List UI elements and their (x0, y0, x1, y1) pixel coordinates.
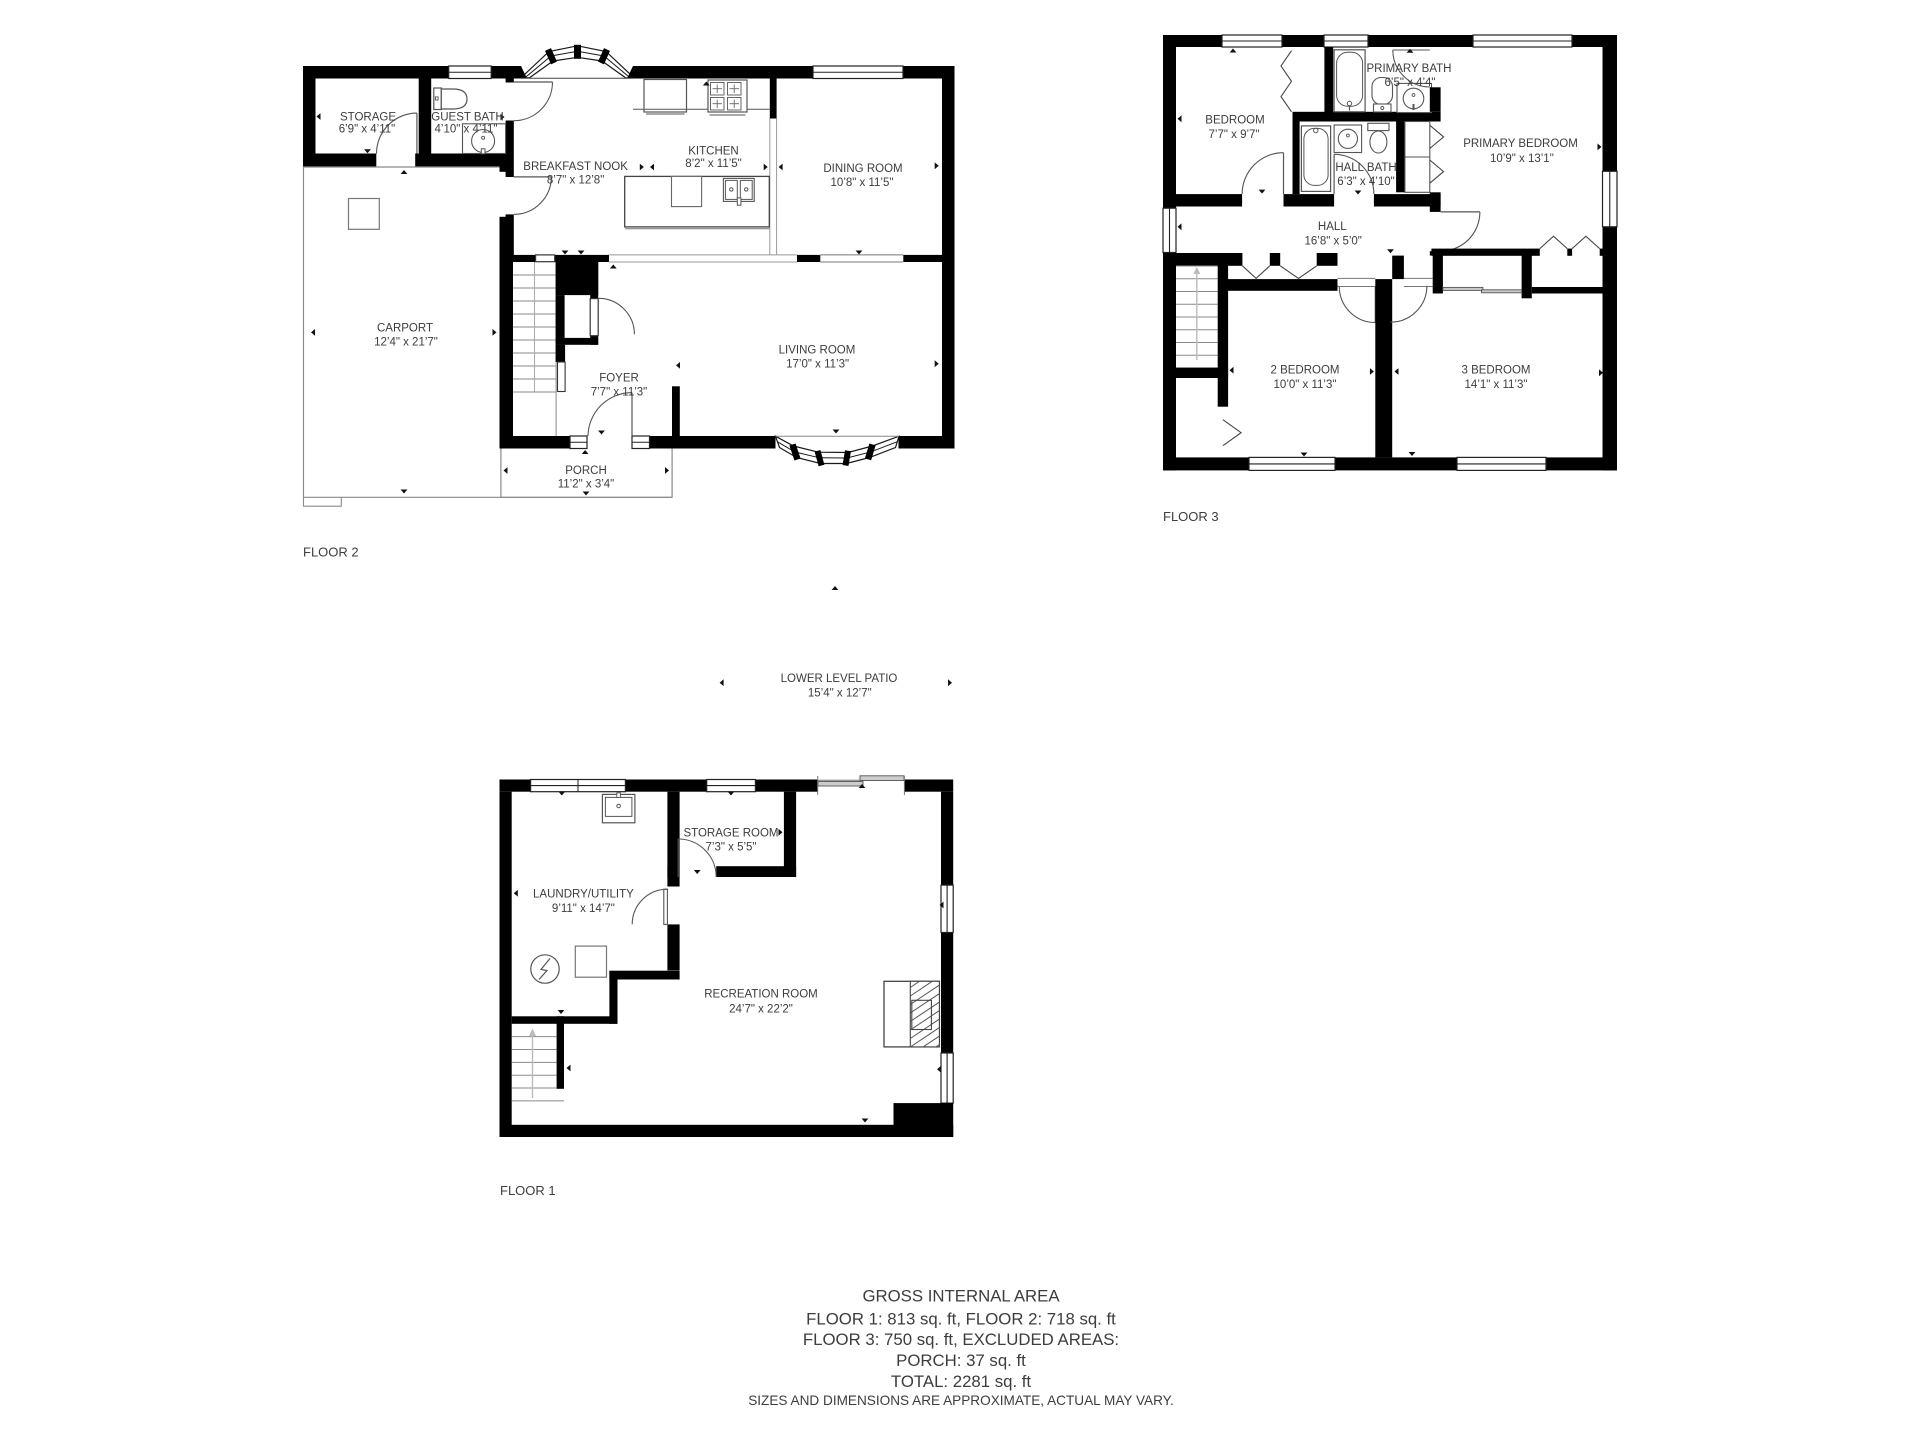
svg-text:6’9" x 4’11": 6’9" x 4’11" (339, 124, 396, 136)
svg-text:SIZES AND DIMENSIONS ARE APPRO: SIZES AND DIMENSIONS ARE APPROXIMATE, AC… (748, 1393, 1174, 1408)
svg-text:PORCH: 37 sq. ft: PORCH: 37 sq. ft (896, 1351, 1026, 1370)
svg-text:17’0" x 11’3": 17’0" x 11’3" (786, 359, 849, 371)
svg-text:KITCHEN: KITCHEN (688, 146, 738, 158)
svg-text:11’2" x 3’4": 11’2" x 3’4" (558, 479, 615, 491)
svg-text:4’10" x 4’11": 4’10" x 4’11" (435, 124, 498, 136)
svg-text:3 BEDROOM: 3 BEDROOM (1461, 365, 1530, 377)
svg-text:RECREATION ROOM: RECREATION ROOM (704, 989, 818, 1001)
svg-text:7’3" x 5’5": 7’3" x 5’5" (706, 842, 757, 854)
svg-text:2 BEDROOM: 2 BEDROOM (1270, 365, 1339, 377)
svg-text:15’4" x 12’7": 15’4" x 12’7" (808, 688, 872, 700)
svg-text:LIVING ROOM: LIVING ROOM (779, 345, 856, 357)
svg-text:STORAGE ROOM: STORAGE ROOM (684, 828, 779, 840)
svg-text:12’4" x 21’7": 12’4" x 21’7" (374, 337, 438, 349)
svg-text:8’2" x 11’5": 8’2" x 11’5" (685, 158, 742, 170)
svg-text:10’9" x 13’1": 10’9" x 13’1" (1490, 153, 1554, 165)
svg-text:HALL: HALL (1318, 221, 1347, 233)
svg-text:PRIMARY BEDROOM: PRIMARY BEDROOM (1463, 138, 1578, 150)
svg-text:TOTAL: 2281 sq. ft: TOTAL: 2281 sq. ft (891, 1372, 1032, 1391)
svg-text:FLOOR 3: FLOOR 3 (1163, 509, 1219, 524)
svg-text:FLOOR 2: FLOOR 2 (303, 545, 359, 560)
svg-text:FLOOR 1: FLOOR 1 (500, 1183, 556, 1198)
svg-text:LAUNDRY/UTILITY: LAUNDRY/UTILITY (533, 889, 634, 901)
svg-text:14’1" x 11’3": 14’1" x 11’3" (1465, 379, 1528, 391)
svg-text:GUEST BATH: GUEST BATH (431, 112, 503, 124)
svg-text:FLOOR 3: 750 sq. ft, EXCLUDED: FLOOR 3: 750 sq. ft, EXCLUDED AREAS: (803, 1330, 1119, 1349)
svg-text:10’0" x 11’3": 10’0" x 11’3" (1274, 379, 1337, 391)
svg-text:FOYER: FOYER (599, 373, 639, 385)
svg-text:24’7" x 22’2": 24’7" x 22’2" (729, 1004, 793, 1016)
svg-text:FLOOR 1: 813 sq. ft, FLOOR 2:: FLOOR 1: 813 sq. ft, FLOOR 2: 718 sq. ft (806, 1309, 1116, 1328)
svg-text:LOWER LEVEL PATIO: LOWER LEVEL PATIO (781, 673, 898, 685)
svg-text:HALL BATH: HALL BATH (1335, 162, 1396, 174)
svg-text:PRIMARY BATH: PRIMARY BATH (1367, 63, 1452, 75)
svg-text:PORCH: PORCH (565, 465, 607, 477)
svg-text:6’5" x 4’4": 6’5" x 4’4" (1385, 77, 1436, 89)
svg-text:BREAKFAST NOOK: BREAKFAST NOOK (523, 161, 628, 173)
svg-text:7’7" x 11’3": 7’7" x 11’3" (591, 387, 648, 399)
svg-text:GROSS INTERNAL AREA: GROSS INTERNAL AREA (862, 1287, 1060, 1306)
svg-text:6’3" x 4’10": 6’3" x 4’10" (1337, 176, 1394, 188)
svg-text:DINING ROOM: DINING ROOM (823, 163, 902, 175)
svg-text:16’8" x 5’0": 16’8" x 5’0" (1304, 236, 1361, 248)
svg-text:7’7" x 9’7": 7’7" x 9’7" (1209, 129, 1260, 141)
svg-text:9’11" x 14’7": 9’11" x 14’7" (552, 903, 615, 915)
svg-text:BEDROOM: BEDROOM (1205, 115, 1264, 127)
svg-text:10’8" x 11’5": 10’8" x 11’5" (831, 177, 894, 189)
svg-text:8’7" x 12’8": 8’7" x 12’8" (547, 175, 604, 187)
svg-text:STORAGE: STORAGE (340, 112, 396, 124)
svg-text:CARPORT: CARPORT (377, 323, 433, 335)
